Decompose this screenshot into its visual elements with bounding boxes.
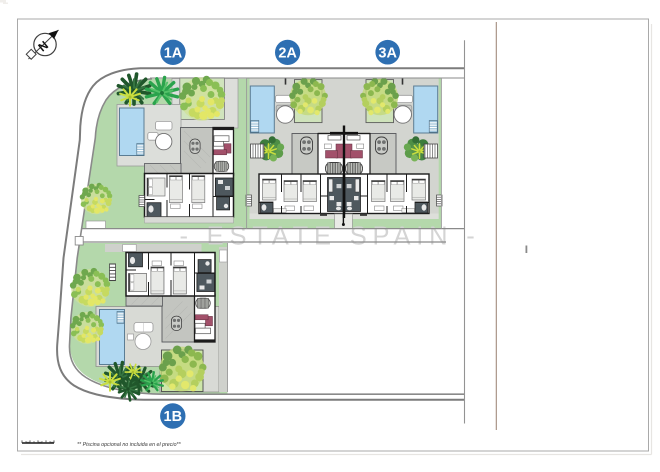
svg-text:- ESTATE SPAIN -: - ESTATE SPAIN - xyxy=(179,223,480,251)
svg-text:** Piscina opcional no incluid: ** Piscina opcional no incluida en el pr… xyxy=(77,442,182,448)
svg-text:1B: 1B xyxy=(164,409,183,425)
svg-text:3A: 3A xyxy=(378,45,397,61)
svg-text:1A: 1A xyxy=(164,46,183,62)
svg-text:2A: 2A xyxy=(278,46,297,62)
